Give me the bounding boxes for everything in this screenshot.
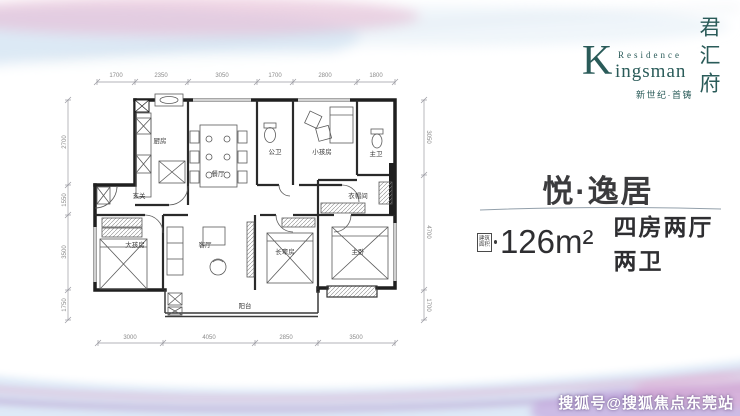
area-label-line2: 面积 — [479, 242, 490, 249]
room-label-living-room: 客厅 — [199, 240, 213, 249]
logo-vertical-name: 君汇府 — [694, 16, 724, 108]
rooms-summary: 四房两厅两卫 — [613, 208, 733, 276]
dim-top-5: 1800 — [369, 73, 383, 79]
dim-top-0: 1700 — [109, 73, 123, 79]
brand-logo: K Residence ingsman 新世纪·首铸 君汇府 — [560, 10, 722, 108]
promo-image: 1700 2350 3050 1700 2800 1800 3000 4050 … — [0, 0, 740, 416]
dot-separator-icon — [494, 240, 497, 244]
dim-right-2: 1700 — [425, 298, 431, 312]
logo-ingsman: ingsman — [615, 61, 686, 83]
dim-top-4: 2800 — [318, 73, 332, 79]
logo-k-letter: K — [582, 40, 612, 82]
dim-right-1: 4700 — [425, 225, 431, 239]
logo-residence: Residence — [618, 50, 682, 60]
area-label-box: 建筑 面积 — [477, 233, 492, 252]
dim-left-0: 2700 — [62, 135, 68, 149]
room-label-big-kid-room: 大孩房 — [125, 240, 145, 249]
area-row: 建筑 面积 126m² 四房两厅两卫 — [477, 224, 733, 260]
area-value: 126m² — [500, 223, 594, 261]
room-label-public-bath: 公卫 — [269, 148, 283, 156]
floorplan-drawing: 1700 2350 3050 1700 2800 1800 3000 4050 … — [55, 55, 445, 365]
dim-top-2: 3050 — [215, 73, 229, 79]
unit-title: 悦·逸居 — [470, 166, 726, 211]
dim-left-2: 3500 — [62, 245, 68, 259]
bay-window — [327, 286, 377, 297]
dim-bottom-1: 4050 — [202, 335, 216, 341]
dim-left-3: 1750 — [62, 298, 68, 312]
dim-bottom-0: 3000 — [123, 335, 137, 341]
dim-bottom-3: 3500 — [349, 335, 363, 341]
dim-top-1: 2350 — [154, 73, 168, 79]
dim-right-0: 3050 — [425, 130, 431, 144]
watermark-text: 搜狐号@搜狐焦点东莞站 — [558, 392, 734, 413]
room-label-kids-room: 小孩房 — [312, 147, 332, 156]
room-label-cloakroom: 衣帽间 — [348, 191, 368, 200]
logo-tagline: 新世纪·首铸 — [636, 88, 693, 101]
room-label-kitchen: 厨房 — [154, 136, 167, 145]
dim-bottom-2: 2850 — [279, 335, 293, 341]
dim-top-3: 1700 — [268, 73, 282, 79]
room-label-dining: 餐厅 — [212, 169, 226, 178]
room-label-balcony: 阳台 — [239, 301, 252, 310]
room-label-master-bath: 主卫 — [370, 149, 384, 158]
room-label-entry: 玄关 — [133, 191, 147, 200]
room-label-master-bedroom: 主卧 — [352, 247, 366, 256]
dim-left-1: 1550 — [62, 193, 68, 207]
kitchen-shaft — [135, 100, 149, 112]
room-label-elder-room: 长辈房 — [275, 247, 295, 256]
